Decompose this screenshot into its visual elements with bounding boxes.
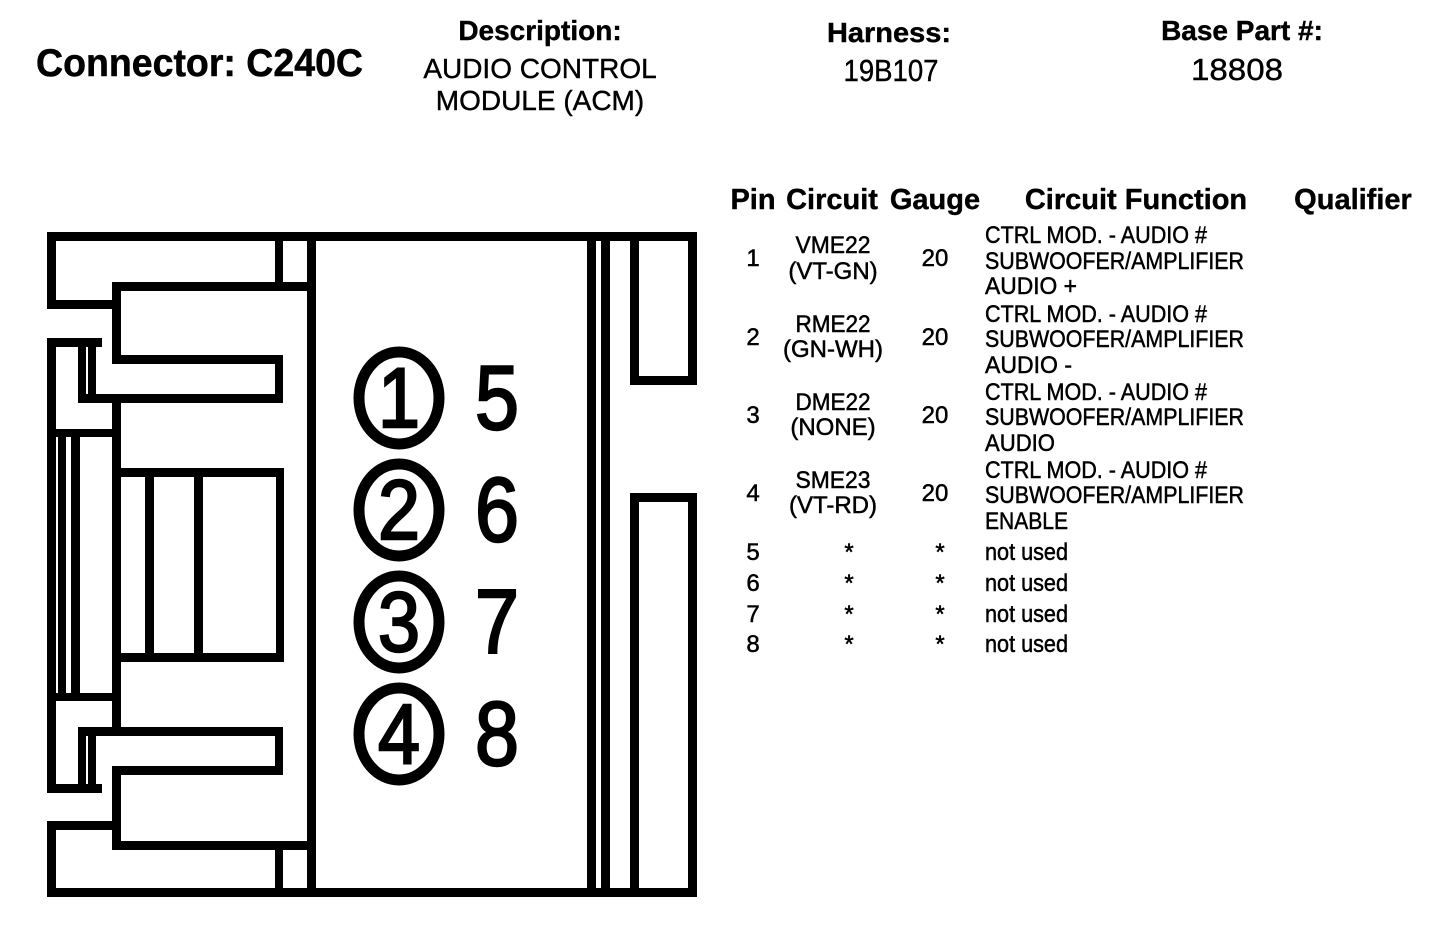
svg-text:Pin: Pin	[730, 184, 775, 216]
svg-text:2: 2	[378, 463, 420, 557]
svg-text:2: 2	[746, 324, 759, 351]
svg-text:CTRL MOD. - AUDIO #: CTRL MOD. - AUDIO #	[985, 457, 1208, 484]
svg-text:ENABLE: ENABLE	[985, 508, 1068, 535]
svg-text:4: 4	[746, 480, 759, 507]
svg-text:SME23: SME23	[796, 467, 871, 494]
svg-text:4: 4	[378, 687, 420, 781]
svg-text:7: 7	[475, 572, 519, 673]
svg-text:not used: not used	[985, 631, 1068, 658]
svg-text:AUDIO -: AUDIO -	[985, 352, 1072, 379]
svg-text:CTRL MOD. - AUDIO #: CTRL MOD. - AUDIO #	[985, 379, 1208, 406]
svg-text:AUDIO CONTROL: AUDIO CONTROL	[423, 53, 656, 84]
svg-text:CTRL MOD. - AUDIO #: CTRL MOD. - AUDIO #	[985, 222, 1208, 249]
svg-text:Circuit: Circuit	[786, 184, 878, 216]
svg-text:(NONE): (NONE)	[790, 414, 875, 441]
svg-text:5: 5	[475, 348, 519, 449]
svg-text:Harness:: Harness:	[827, 17, 951, 48]
svg-text:*: *	[844, 601, 853, 628]
svg-text:*: *	[935, 570, 944, 597]
svg-text:VME22: VME22	[796, 232, 871, 259]
svg-text:Connector: C240C: Connector: C240C	[36, 42, 363, 85]
svg-text:1: 1	[746, 245, 759, 272]
svg-text:20: 20	[922, 324, 949, 351]
svg-text:1: 1	[378, 351, 420, 445]
svg-text:Qualifier: Qualifier	[1294, 184, 1412, 216]
svg-text:6: 6	[746, 570, 759, 597]
svg-text:CTRL MOD. - AUDIO #: CTRL MOD. - AUDIO #	[985, 301, 1208, 328]
svg-text:5: 5	[746, 539, 759, 566]
svg-text:(GN-WH): (GN-WH)	[783, 336, 883, 363]
svg-text:8: 8	[746, 631, 759, 658]
svg-text:18808: 18808	[1191, 52, 1283, 87]
svg-text:3: 3	[378, 575, 420, 669]
svg-text:AUDIO: AUDIO	[985, 430, 1055, 457]
svg-text:20: 20	[922, 245, 949, 272]
svg-text:MODULE (ACM): MODULE (ACM)	[436, 85, 644, 116]
svg-text:RME22: RME22	[796, 311, 871, 338]
svg-text:6: 6	[475, 460, 519, 561]
svg-text:20: 20	[922, 402, 949, 429]
svg-text:8: 8	[475, 684, 519, 785]
svg-text:SUBWOOFER/AMPLIFIER: SUBWOOFER/AMPLIFIER	[985, 404, 1244, 431]
svg-text:3: 3	[746, 402, 759, 429]
svg-text:Gauge: Gauge	[890, 184, 980, 216]
svg-text:Description:: Description:	[458, 15, 621, 46]
svg-text:not used: not used	[985, 570, 1068, 597]
svg-text:19B107: 19B107	[844, 53, 939, 88]
svg-text:*: *	[844, 539, 853, 566]
svg-text:20: 20	[922, 480, 949, 507]
svg-text:(VT-GN): (VT-GN)	[788, 258, 877, 285]
svg-text:*: *	[935, 539, 944, 566]
svg-text:7: 7	[746, 601, 759, 628]
svg-text:Base Part #:: Base Part #:	[1161, 15, 1323, 46]
svg-text:*: *	[844, 631, 853, 658]
svg-text:not used: not used	[985, 539, 1068, 566]
svg-text:not used: not used	[985, 601, 1068, 628]
svg-text:*: *	[935, 601, 944, 628]
svg-text:DME22: DME22	[796, 389, 871, 416]
svg-text:*: *	[844, 570, 853, 597]
svg-text:SUBWOOFER/AMPLIFIER: SUBWOOFER/AMPLIFIER	[985, 248, 1244, 275]
svg-text:SUBWOOFER/AMPLIFIER: SUBWOOFER/AMPLIFIER	[985, 482, 1244, 509]
svg-text:*: *	[935, 631, 944, 658]
svg-text:Circuit Function: Circuit Function	[1025, 184, 1247, 216]
svg-text:AUDIO +: AUDIO +	[985, 273, 1077, 300]
svg-text:(VT-RD): (VT-RD)	[789, 492, 877, 519]
svg-text:SUBWOOFER/AMPLIFIER: SUBWOOFER/AMPLIFIER	[985, 326, 1244, 353]
